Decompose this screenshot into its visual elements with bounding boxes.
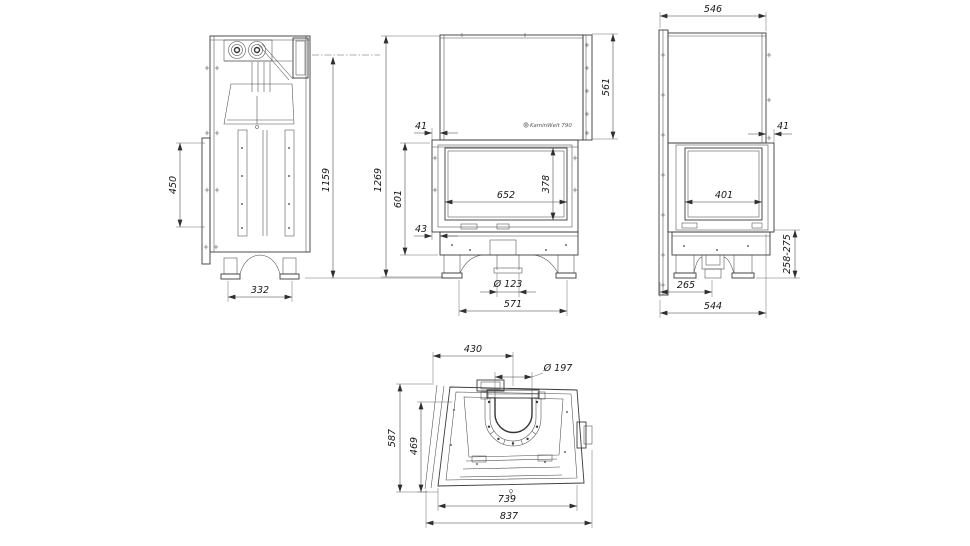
side-left-outline <box>202 36 380 279</box>
view-side-right: 546 41 401 258-275 265 544 <box>659 4 800 318</box>
dim-top-body-depth: 469 <box>409 437 420 455</box>
dim-top-overall-depth: 587 <box>387 429 398 447</box>
dim-top-flue-diameter: Ø 197 <box>543 363 573 374</box>
dim-front-hood-inset: 41 <box>415 121 427 132</box>
dim-front-base-inset: 43 <box>415 224 427 235</box>
front-dimensions: 41 43 601 1269 561 652 378 Ø 123 571 <box>373 34 618 316</box>
dim-right-plinth-height: 258-275 <box>782 234 793 274</box>
dim-right-foot-offset: 265 <box>677 280 695 291</box>
dim-front-hood-height: 561 <box>601 78 612 96</box>
technical-drawing: 450 1159 332 KaminWelt 790 <box>0 0 970 546</box>
drawing-canvas: 450 1159 332 KaminWelt 790 <box>0 0 970 546</box>
view-front: KaminWelt 790 <box>373 33 618 316</box>
dim-front-overall-height: 1269 <box>373 168 384 192</box>
dim-left-base-width: 332 <box>251 285 269 296</box>
dim-front-firebox-height: 601 <box>393 190 404 208</box>
dim-left-inlet-height: 450 <box>168 176 179 194</box>
dim-left-body-height: 1159 <box>321 168 332 192</box>
dim-right-hood-inset: 41 <box>777 121 789 132</box>
dim-right-glass-width: 401 <box>715 190 733 201</box>
side-right-outline <box>659 30 774 295</box>
dim-top-overall-width: 837 <box>500 511 518 522</box>
brand-logo: KaminWelt 790 <box>530 123 572 129</box>
dim-top-flue-center-offset: 430 <box>464 344 482 355</box>
top-outline <box>425 380 592 498</box>
view-top: 430 Ø 197 587 469 739 837 <box>387 344 592 528</box>
dim-top-body-width: 739 <box>498 494 516 505</box>
side-right-dimensions: 546 41 401 258-275 265 544 <box>660 4 800 318</box>
view-side-left: 450 1159 332 <box>168 36 452 302</box>
dim-right-top-depth: 546 <box>704 4 722 15</box>
front-outline: KaminWelt 790 <box>432 33 592 278</box>
dim-front-air-inlet-diameter: Ø 123 <box>493 279 523 290</box>
dim-front-base-width: 571 <box>504 299 522 310</box>
dim-front-glass-width: 652 <box>497 190 515 201</box>
top-dimensions: 430 Ø 197 587 469 739 837 <box>387 344 592 528</box>
dim-front-glass-height: 378 <box>541 175 552 193</box>
dim-right-base-depth: 544 <box>704 301 722 312</box>
